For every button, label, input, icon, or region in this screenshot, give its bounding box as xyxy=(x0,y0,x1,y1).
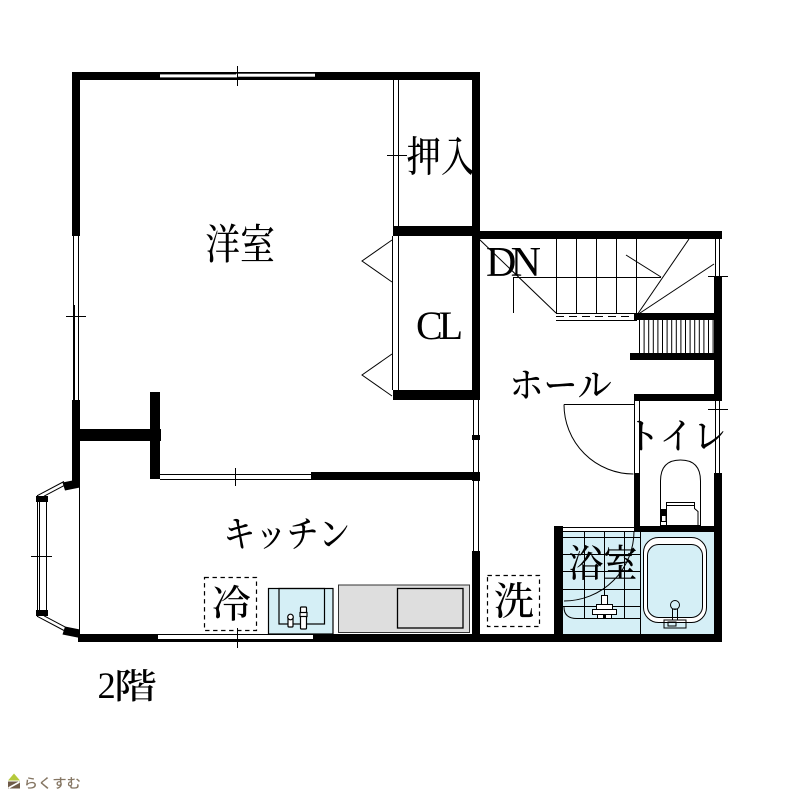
svg-text:2: 2 xyxy=(98,665,116,706)
svg-text:DN: DN xyxy=(486,240,541,286)
svg-text:CL: CL xyxy=(416,303,463,348)
